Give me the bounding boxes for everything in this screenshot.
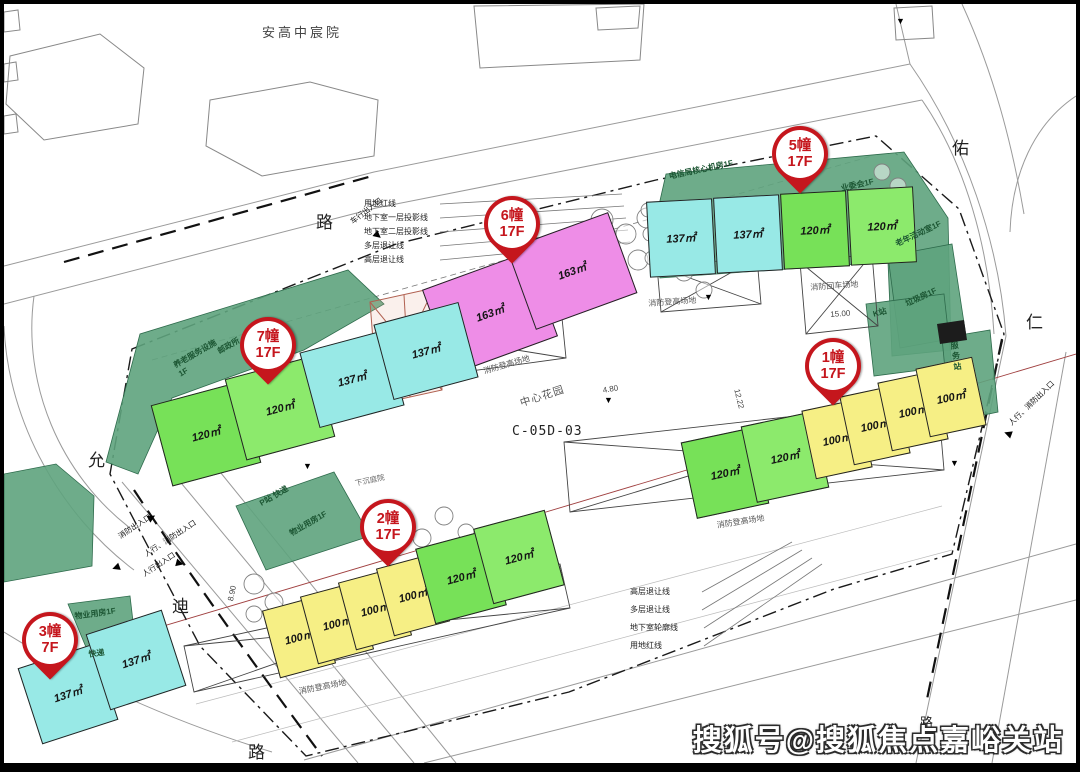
unit-size-label: 120㎡ [503,545,536,568]
building-unit: 137㎡ [713,194,783,273]
road-label-yun: 允 [88,446,106,471]
boundary-note: 高层退让线 [364,254,404,265]
badge-label: 7幢17F [244,321,292,369]
building-unit: 120㎡ [780,190,850,269]
unit-size-label: 137㎡ [666,229,696,247]
boundary-note: 多层退让线 [364,240,404,251]
elevation-marker-icon: ▼ [896,16,905,26]
unit-size-label: 120㎡ [800,221,830,239]
badge-label: 5幢17F [776,130,824,178]
elevation-marker-icon: ▼ [950,458,959,468]
unit-size-label: 137㎡ [52,682,85,706]
elevation-marker-icon: ▼ [303,461,312,471]
unit-size-label: 137㎡ [733,225,763,243]
legend-note: 用地红线 [630,640,662,651]
unit-size-label: 120㎡ [769,446,801,468]
unit-size-label: 120㎡ [709,462,741,484]
road-label-ren: 仁 [1026,308,1044,333]
unit-size-label: 137㎡ [410,339,443,362]
unit-size-label: 163㎡ [473,300,506,325]
legend-note: 多层退让线 [630,604,670,615]
unit-size-label: 120㎡ [264,396,297,419]
parcel-code-label: C-05D-03 [512,424,583,439]
badge-label: 3幢7F [26,616,74,664]
elevation-marker-icon: ▼ [604,395,613,405]
siteplan-image-frame: 120㎡ 120㎡ 100㎡ 100㎡ 100㎡ 100㎡ 100㎡ 100㎡ … [0,0,1080,772]
unit-size-label: 137㎡ [336,367,369,390]
unit-size-label: 163㎡ [555,258,588,283]
unit-size-label: 120㎡ [445,565,478,588]
boundary-note: 地下室二层投影线 [364,226,428,237]
boundary-note: 地下室一层投影线 [364,212,428,223]
legend-note: 高层退让线 [630,586,670,597]
building-unit: 137㎡ [646,198,716,277]
elevation-marker-icon: ▼ [704,292,713,302]
dimension-label: 15.00 [830,309,851,319]
unit-size-label: 137㎡ [120,648,153,672]
unit-size-label: 120㎡ [190,422,223,445]
road-label-di: 迪 [172,592,190,617]
badge-label: 1幢17F [809,342,857,390]
badge-label: 6幢17F [488,200,536,248]
road-label-top: 路 [316,208,334,233]
legend-note: 地下室轮廓线 [630,622,678,633]
siteplan-canvas: 120㎡ 120㎡ 100㎡ 100㎡ 100㎡ 100㎡ 100㎡ 100㎡ … [4,4,1076,763]
badge-label: 2幢17F [364,503,412,551]
adjacent-project-name: 安高中宸院 [262,22,342,41]
unit-size-label: 100㎡ [935,386,967,408]
unit-size-label: 120㎡ [867,217,897,235]
watermark: 搜狐号@搜狐焦点嘉峪关站 [693,717,1064,759]
building-unit: 120㎡ [847,186,917,265]
road-label-bottom: 路 [248,738,266,763]
road-label-you: 佑 [952,134,970,159]
